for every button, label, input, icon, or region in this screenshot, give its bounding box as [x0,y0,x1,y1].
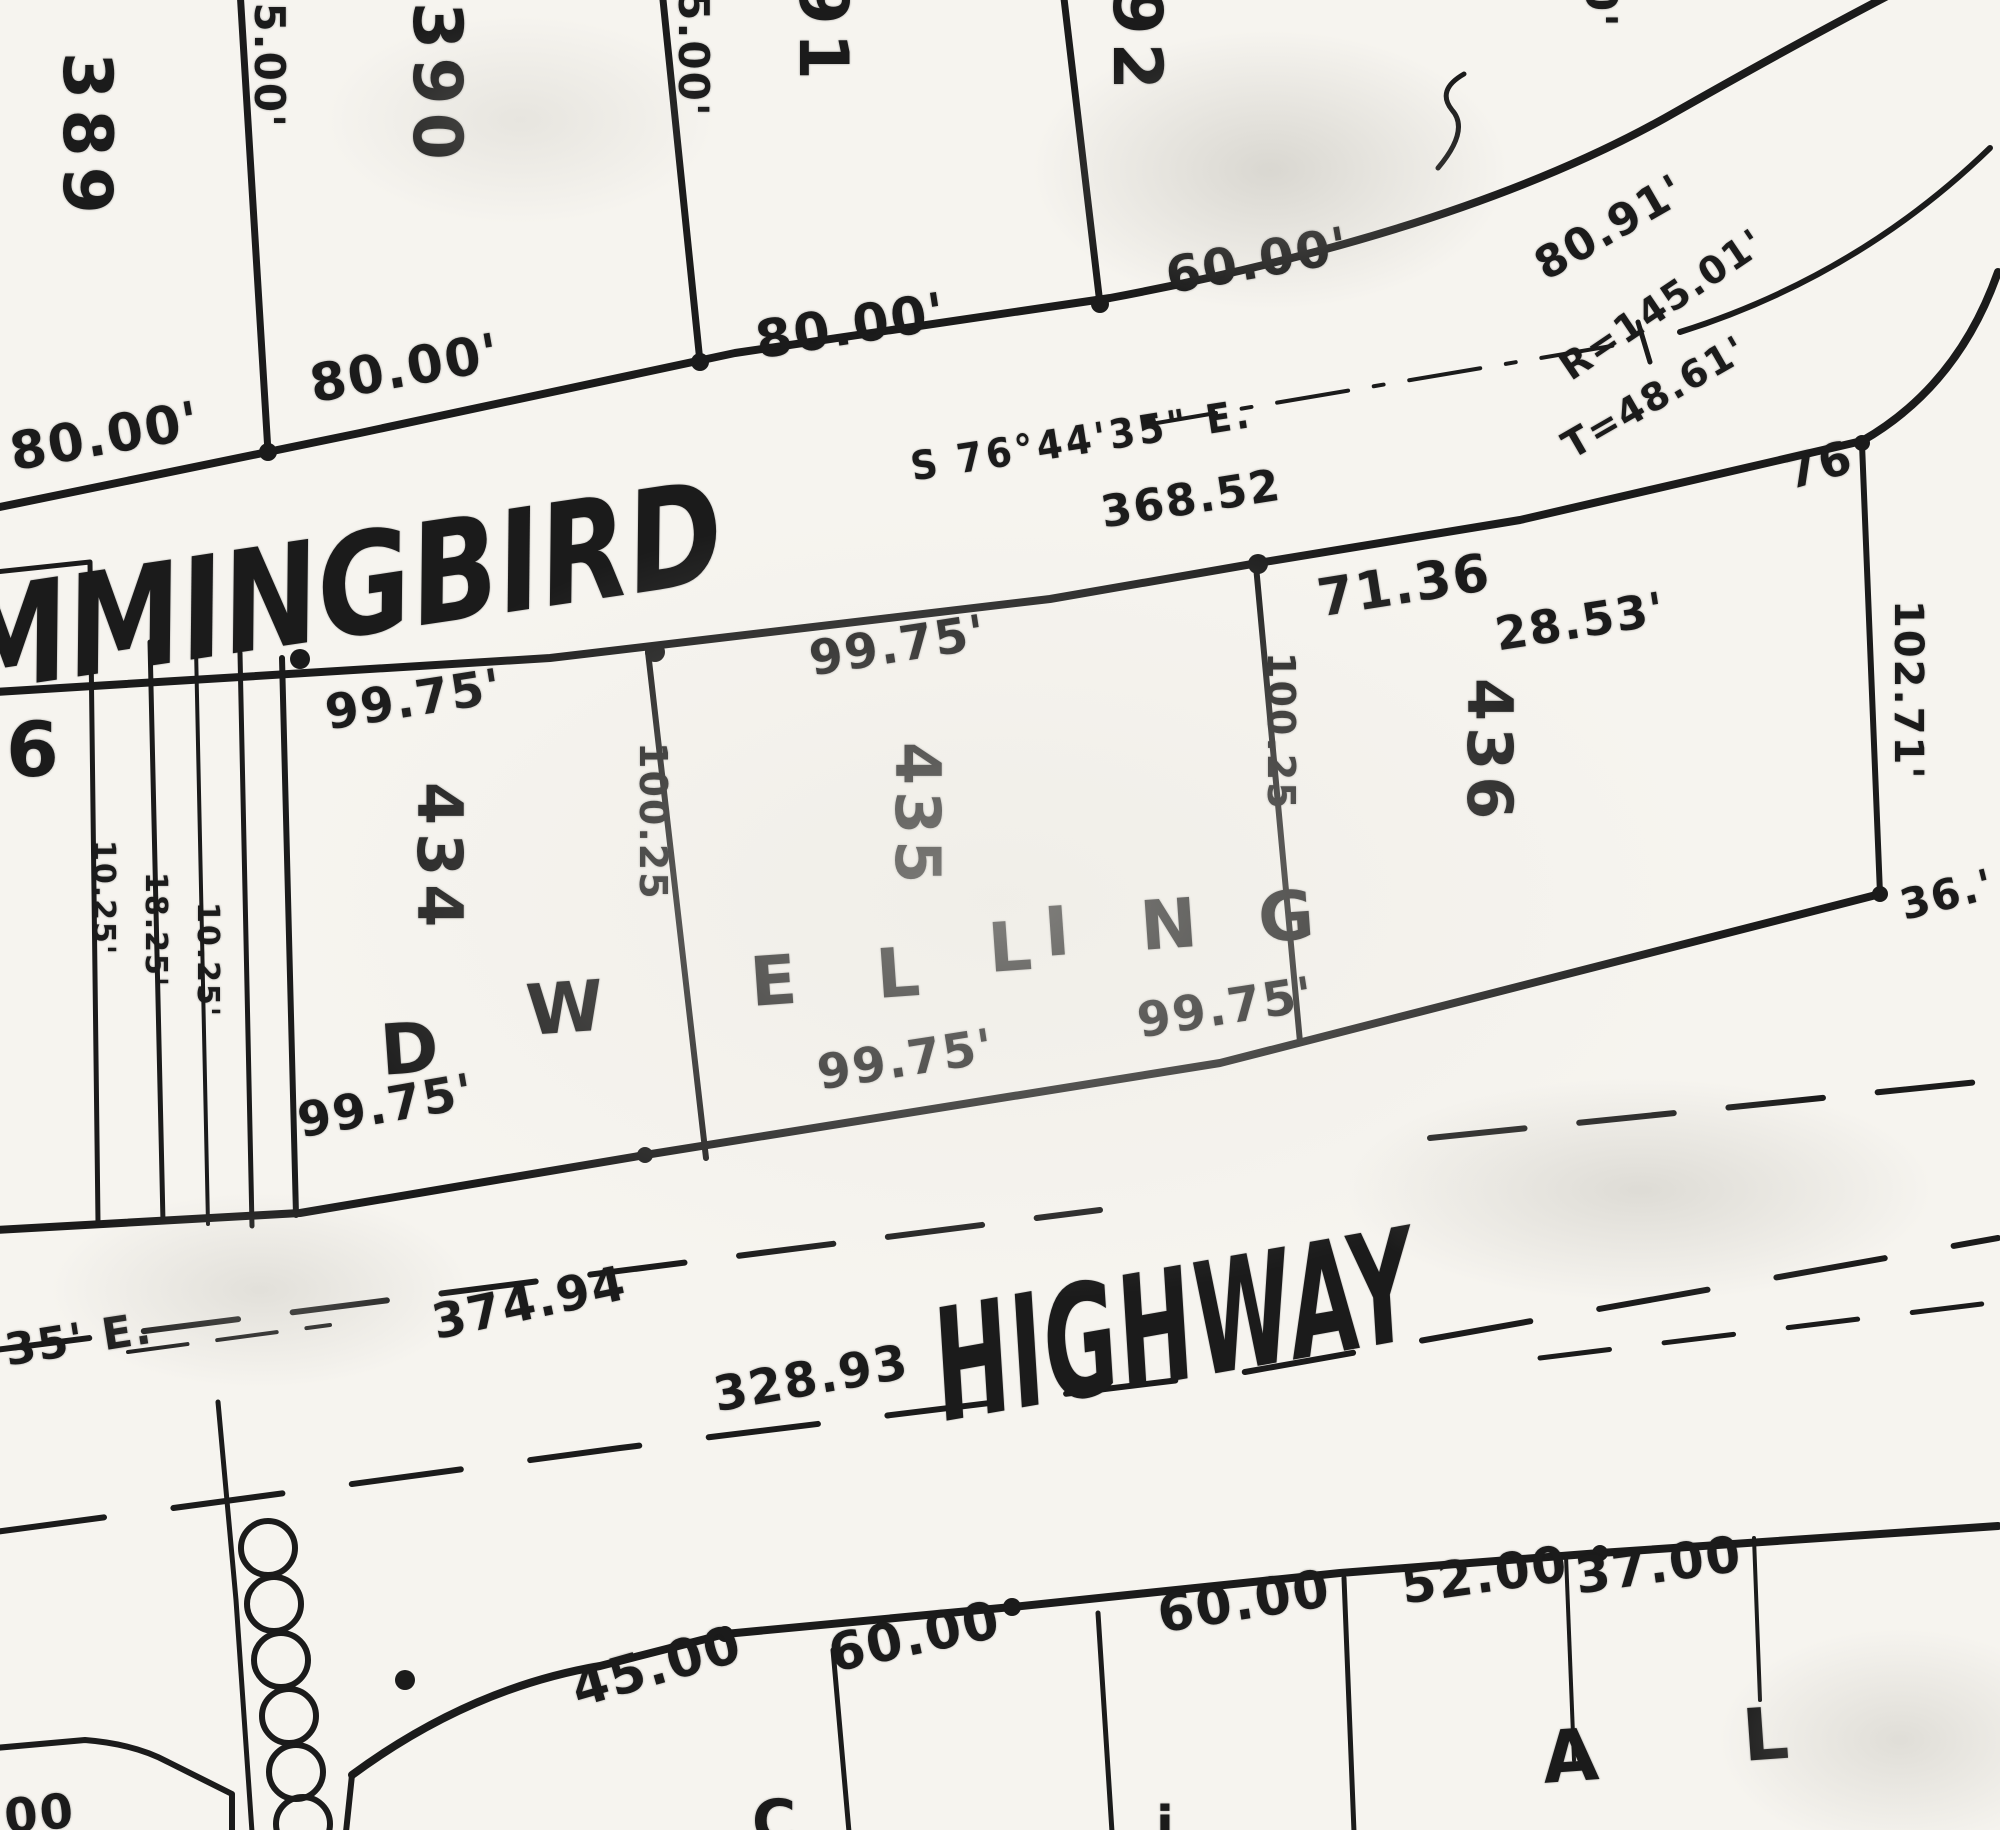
bottom-letter-a: A [1540,1718,1603,1794]
bottom-boundary-3 [1344,1578,1354,1830]
dim-125-00: 125.00' [248,0,290,129]
dim-10025-ab: 100.25 [634,742,672,901]
lot-number-391: 391 [788,0,856,88]
dwelling-letter-g: G [1256,882,1318,954]
boundary-434-435 [648,652,706,1158]
lot-number-389: 389 [52,52,120,224]
dim-25-00: 25.00' [672,0,714,118]
dwelling-letter-i: I [1042,898,1074,968]
strip-dim-3: 10.25' [192,902,222,1018]
plat-map-scan: 389 125.00' 390 25.00' 391 392 00' 80.00… [0,0,2000,1830]
bottom-boundary-2 [1098,1613,1112,1830]
left-strip-line-4 [240,653,252,1226]
lot-number-436: 436 [1458,678,1520,825]
dwelling-letter-e: E [748,947,801,1018]
lot436-east-boundary [1862,444,1880,894]
bottom-corner-drop [346,1775,352,1830]
dim-10025-bc: 100.25 [1262,652,1300,811]
bottom-fragment-00: 00 [2,1787,77,1830]
lot-number-392: 392 [1102,0,1170,98]
lot-number-434: 434 [408,782,470,935]
strip-dim-2: 18.25' [140,872,170,988]
bottom-fragment-c: C [752,1792,798,1830]
highway-dashed-north-east [1430,1080,1998,1138]
lot434-west-boundary [282,658,296,1215]
lot-number-390: 390 [402,2,470,168]
dwelling-letter-l2: L [986,913,1036,984]
lot-number-partial-6: 6 [6,712,61,788]
dim-10271-east: 102.71' [1888,600,1928,781]
bottom-letter-l: L [1740,1697,1793,1772]
bottom-boundary-5 [1754,1538,1760,1700]
dwelling-letter-d: D [378,1012,443,1086]
boundary-391-392 [1063,0,1100,304]
lot-number-435: 435 [886,742,948,889]
dim-fragment-top-right: 00' [1578,0,1622,29]
highway-dashed-extra [1540,1302,1998,1358]
dwelling-letter-n: N [1138,890,1202,962]
dwelling-letter-w: W [524,970,608,1045]
strip-dim-1: 10.25' [88,840,118,956]
bottom-fragment-i: i. [1156,1800,1198,1830]
loop-chain [241,1521,330,1830]
dwelling-letter-l1: L [874,939,924,1010]
curve-break-squiggle [1438,74,1464,168]
